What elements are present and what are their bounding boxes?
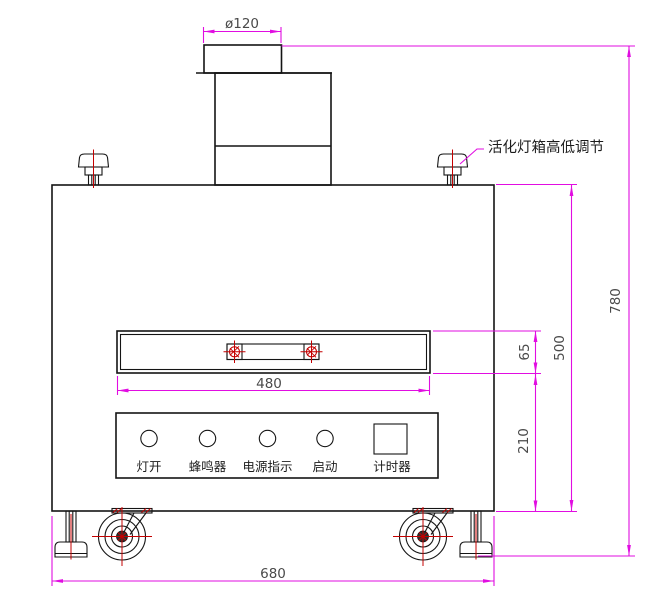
dim-cap-diameter-label: ø120 bbox=[225, 16, 259, 32]
label-lamp-on: 灯开 bbox=[136, 459, 161, 474]
dimension-slot-width: 480 bbox=[118, 376, 430, 395]
caster-left bbox=[92, 507, 152, 566]
dimension-slot-height: 65 bbox=[433, 331, 541, 512]
tower-body bbox=[215, 73, 331, 185]
leveling-foot-right bbox=[460, 511, 492, 560]
dim-cabinet-width-label: 680 bbox=[260, 566, 286, 582]
timer-display bbox=[374, 424, 407, 454]
dimension-lower-section-height: 210 bbox=[516, 374, 537, 512]
leader-line bbox=[460, 149, 484, 164]
note-label: 活化灯箱高低调节 bbox=[488, 139, 604, 156]
dimension-cap-diameter: ø120 bbox=[204, 16, 282, 43]
dimension-total-height: 780 bbox=[282, 46, 636, 556]
dim-slot-height-label: 65 bbox=[517, 343, 533, 360]
slot-outer bbox=[117, 331, 430, 373]
label-start: 启动 bbox=[312, 459, 337, 474]
caster-right bbox=[393, 507, 453, 566]
adjust-knob-right bbox=[438, 150, 468, 189]
tower-cap bbox=[204, 45, 282, 73]
indicator-power bbox=[259, 430, 275, 446]
viewing-slot bbox=[117, 331, 430, 373]
slot-inner bbox=[121, 335, 427, 370]
button-buzzer bbox=[199, 430, 215, 446]
button-lamp-on bbox=[141, 430, 157, 446]
adjust-knob-left bbox=[79, 150, 109, 189]
technical-drawing: 灯开 蜂鸣器 电源指示 启动 计时器 bbox=[0, 0, 646, 610]
height-adjust-note: 活化灯箱高低调节 bbox=[460, 139, 604, 164]
drawing-page: 灯开 蜂鸣器 电源指示 启动 计时器 bbox=[0, 0, 646, 610]
label-buzzer: 蜂鸣器 bbox=[189, 459, 227, 474]
button-start bbox=[317, 430, 333, 446]
label-timer: 计时器 bbox=[373, 459, 411, 474]
dim-cabinet-height-label: 500 bbox=[552, 335, 568, 361]
dim-lower-section-label: 210 bbox=[516, 428, 532, 454]
lamp-tower bbox=[196, 45, 332, 185]
dim-slot-width-label: 480 bbox=[256, 376, 282, 392]
dimension-cabinet-height: 500 bbox=[496, 185, 577, 512]
label-power-indicator: 电源指示 bbox=[242, 459, 292, 474]
dim-total-height-label: 780 bbox=[608, 288, 624, 314]
control-panel: 灯开 蜂鸣器 电源指示 启动 计时器 bbox=[116, 413, 438, 478]
leveling-foot-left bbox=[55, 511, 87, 560]
